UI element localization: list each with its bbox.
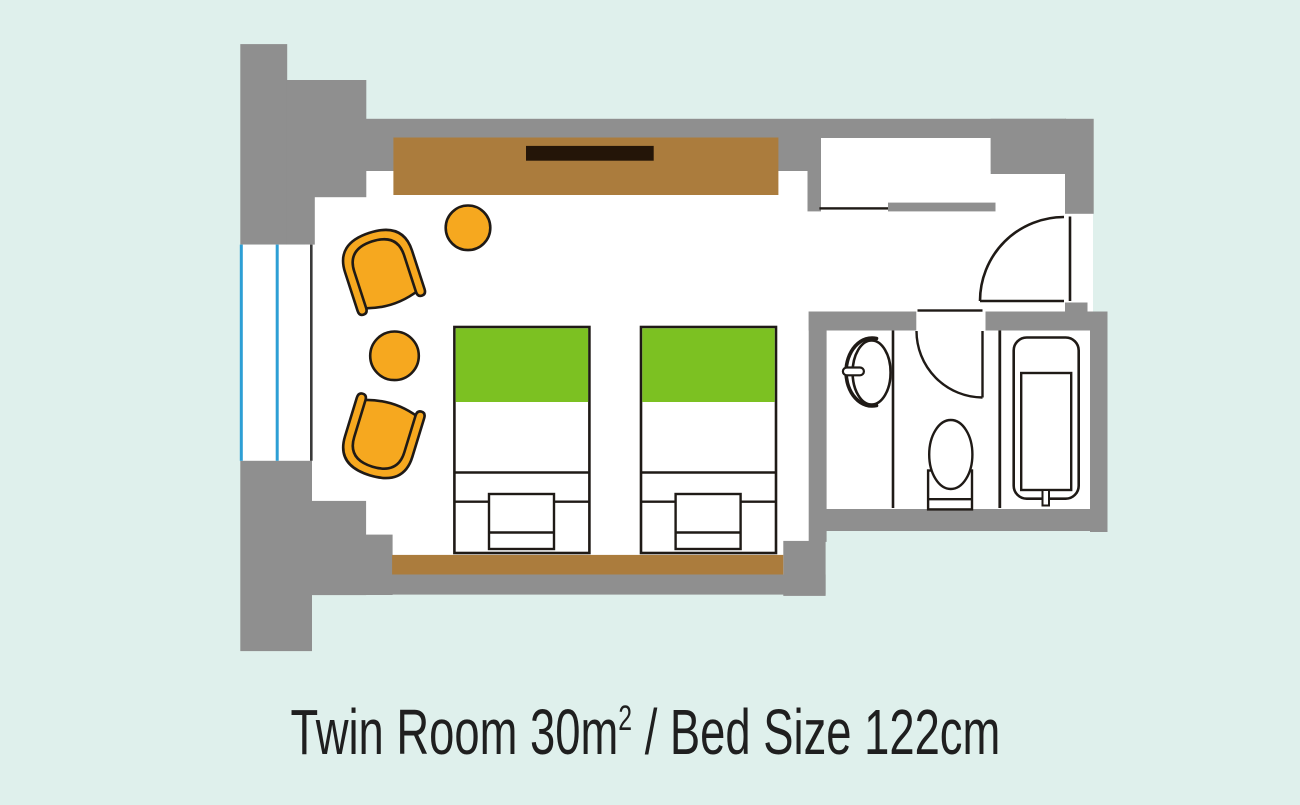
svg-text:Twin Room 30m2 / Bed Size 122c: Twin Room 30m2 / Bed Size 122cm bbox=[291, 696, 1001, 768]
